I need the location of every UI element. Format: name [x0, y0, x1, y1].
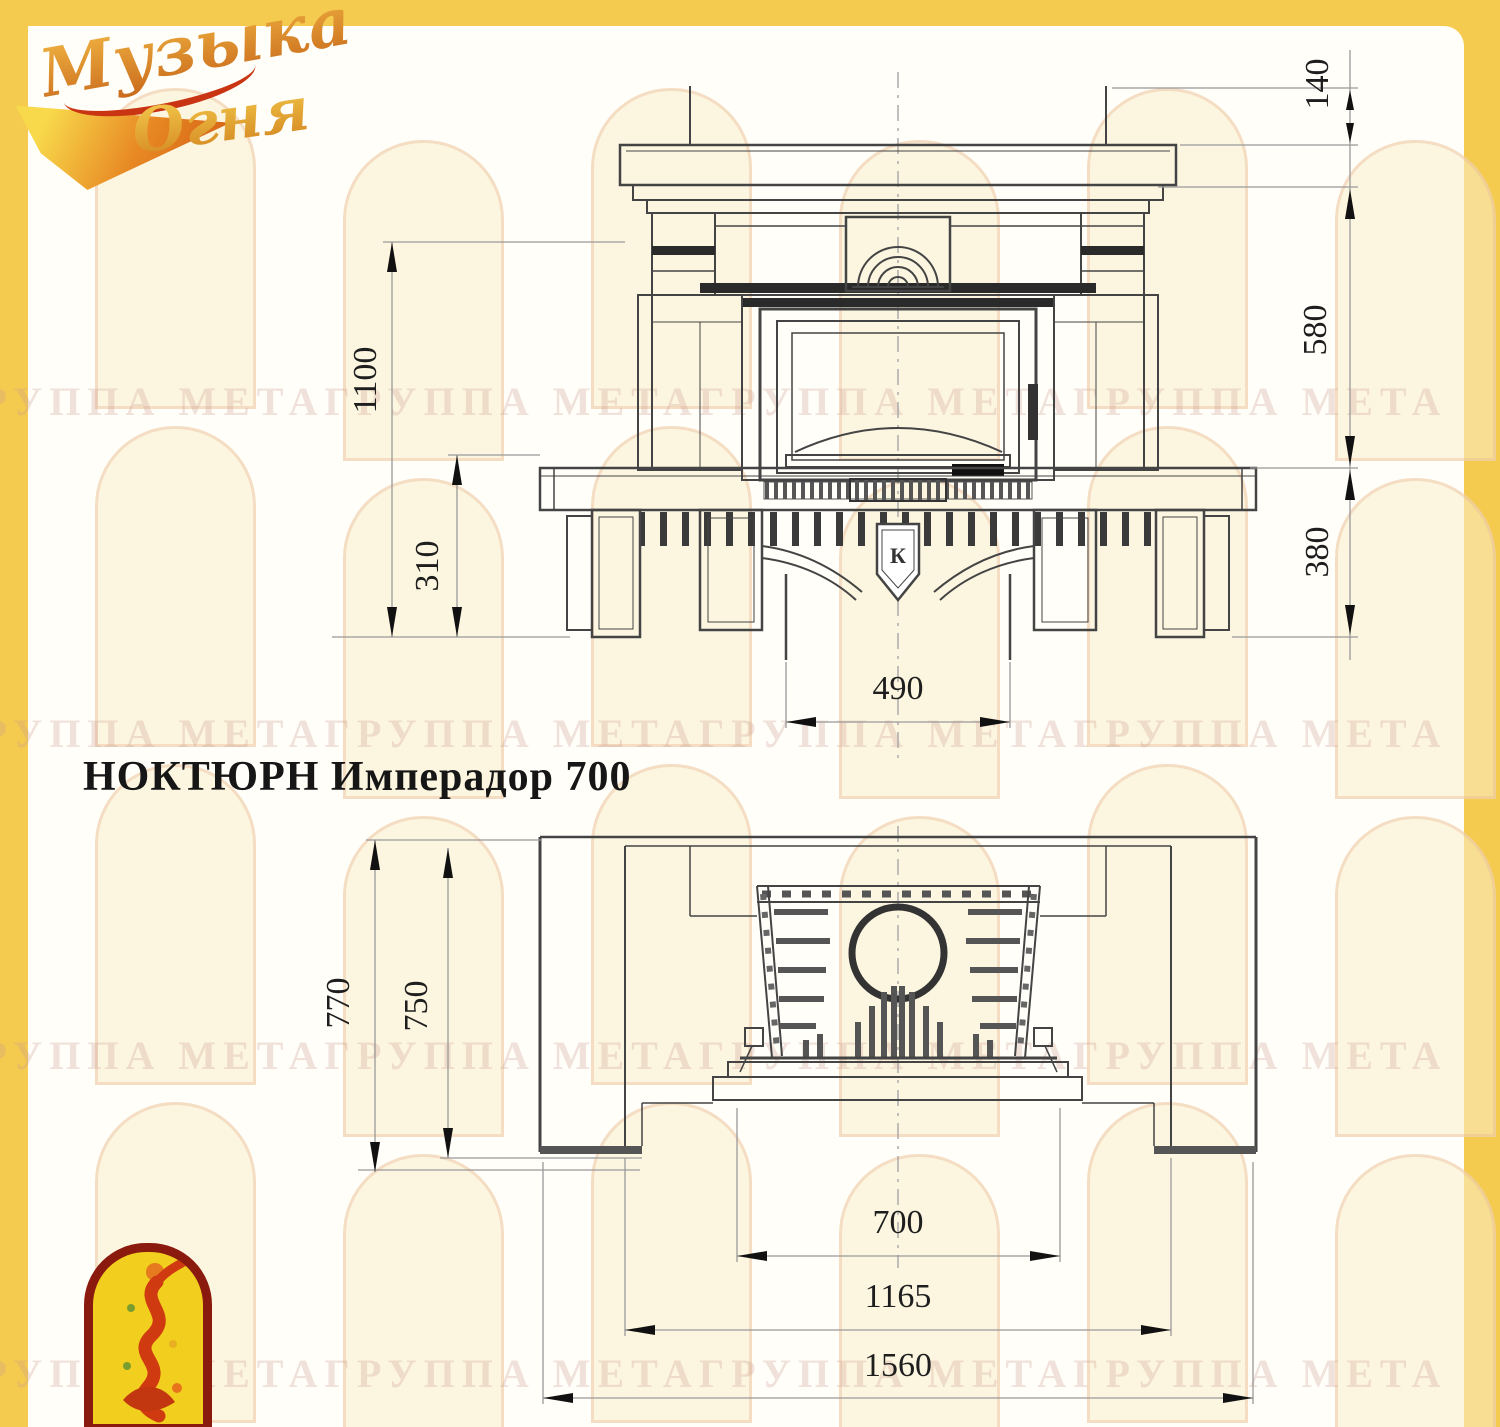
fire-dancer-figure [93, 1252, 203, 1424]
keystone-mark: К [890, 543, 906, 569]
dim-label-310: 310 [409, 541, 447, 592]
dim-label-1100: 1100 [347, 347, 385, 414]
dim-label-490: 490 [873, 670, 924, 708]
dim-label-750: 750 [398, 981, 436, 1032]
dim-label-580: 580 [1297, 305, 1335, 356]
front-view-drawing [332, 50, 1358, 758]
fire-dancer-emblem [84, 1243, 212, 1427]
page-title: НОКТЮРН Имперадор 700 [83, 753, 632, 801]
dim-label-380: 380 [1299, 527, 1337, 578]
flue-collar-circle [852, 907, 944, 999]
dim-label-1165: 1165 [865, 1278, 932, 1316]
dim-label-140: 140 [1299, 59, 1337, 110]
fireplace-technical-drawing [0, 0, 1500, 1427]
dimension-arrows [370, 840, 1253, 1403]
dim-label-770: 770 [320, 978, 358, 1029]
plan-view-drawing [358, 826, 1256, 1404]
catalog-page: ГРУППА МЕТАГРУППА МЕТАГРУППА МЕТАГРУППА … [0, 0, 1500, 1427]
dim-label-700: 700 [873, 1204, 924, 1242]
door-handle [1028, 384, 1038, 440]
dim-label-1560: 1560 [864, 1347, 932, 1385]
brand-logo: Музыка Огня [12, 2, 322, 202]
plan-view-dimensions [358, 840, 1253, 1404]
